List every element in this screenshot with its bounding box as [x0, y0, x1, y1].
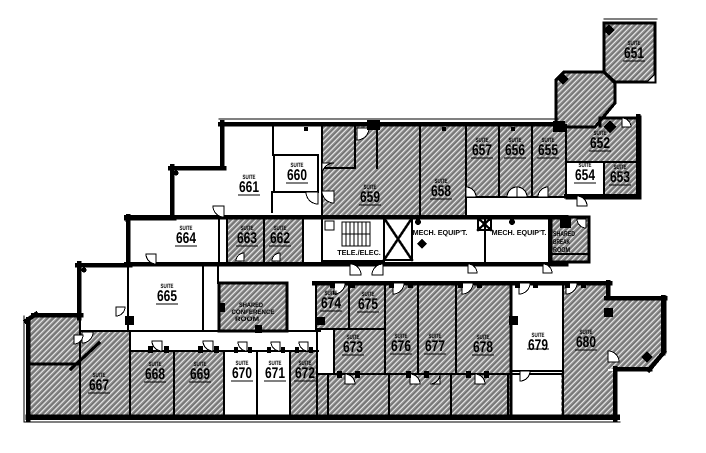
svg-text:654: 654 — [575, 167, 595, 184]
svg-text:680: 680 — [576, 334, 596, 351]
svg-text:667: 667 — [89, 377, 109, 394]
svg-text:679: 679 — [528, 337, 548, 354]
svg-text:TELE./ELEC.: TELE./ELEC. — [337, 248, 381, 257]
svg-text:678: 678 — [473, 339, 493, 356]
svg-text:660: 660 — [287, 167, 307, 184]
svg-text:671: 671 — [265, 365, 285, 382]
svg-text:MECH. EQUIP'T.: MECH. EQUIP'T. — [413, 228, 468, 237]
svg-text:673: 673 — [343, 339, 363, 356]
svg-text:ROOM: ROOM — [235, 316, 259, 323]
svg-text:674: 674 — [321, 295, 341, 312]
svg-text:664: 664 — [176, 230, 196, 247]
svg-text:MECH. EQUIP'T.: MECH. EQUIP'T. — [492, 228, 547, 237]
svg-text:672: 672 — [295, 365, 315, 382]
svg-text:651: 651 — [624, 45, 644, 62]
svg-text:668: 668 — [145, 366, 165, 383]
svg-text:CONFERENCE: CONFERENCE — [232, 309, 276, 316]
svg-text:SHARED: SHARED — [239, 302, 263, 309]
svg-text:658: 658 — [431, 183, 451, 200]
svg-text:675: 675 — [358, 296, 378, 313]
svg-text:655: 655 — [538, 142, 558, 159]
svg-text:669: 669 — [190, 366, 210, 383]
svg-text:663: 663 — [237, 230, 257, 247]
svg-text:656: 656 — [505, 142, 525, 159]
svg-text:SHARED: SHARED — [553, 231, 575, 238]
svg-text:676: 676 — [391, 338, 411, 355]
svg-text:652: 652 — [590, 135, 610, 152]
svg-text:653: 653 — [610, 169, 630, 186]
svg-text:657: 657 — [472, 142, 492, 159]
svg-text:665: 665 — [157, 288, 177, 305]
svg-text:ROOM: ROOM — [553, 247, 570, 254]
svg-text:661: 661 — [239, 179, 259, 196]
svg-text:677: 677 — [425, 338, 445, 355]
svg-text:659: 659 — [360, 189, 380, 206]
svg-text:662: 662 — [270, 230, 290, 247]
svg-text:BREAK: BREAK — [553, 239, 570, 246]
svg-text:670: 670 — [232, 365, 252, 382]
